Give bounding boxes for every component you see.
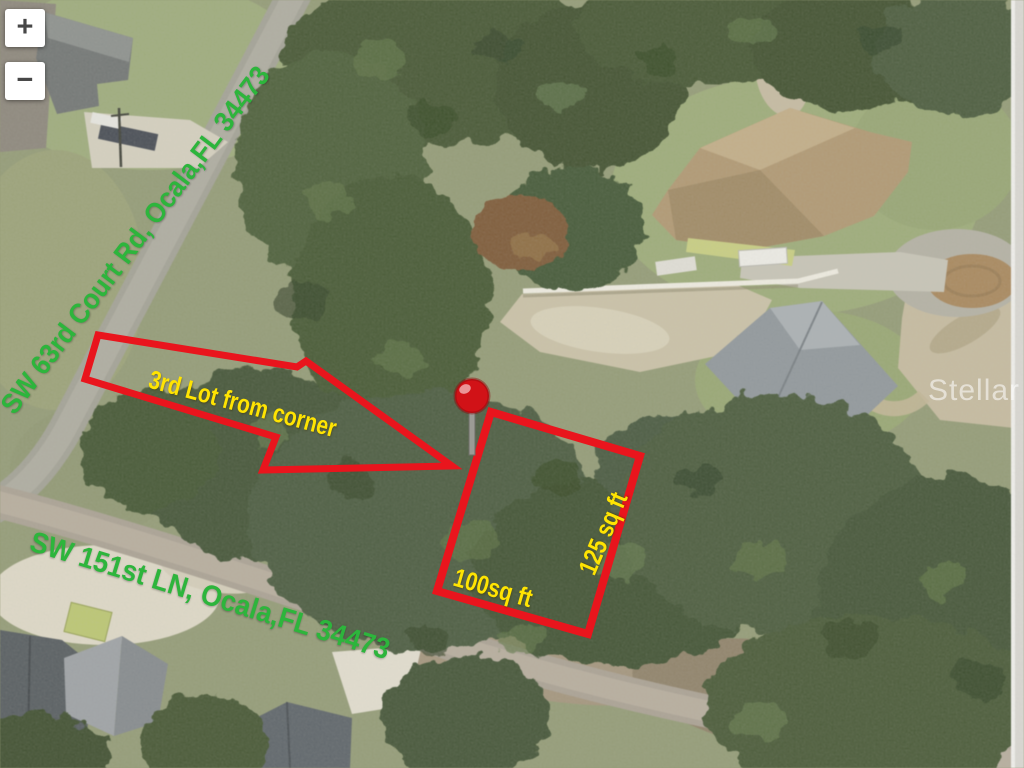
zoom-in-button[interactable]: + — [5, 9, 45, 47]
aerial-map-view: SW 63rd Court Rd, Ocala,FL 34473 SW 151s… — [0, 0, 1024, 768]
stellar-mls-watermark: Stellar MLS — [928, 374, 1024, 408]
zoom-out-button[interactable]: − — [5, 62, 45, 100]
